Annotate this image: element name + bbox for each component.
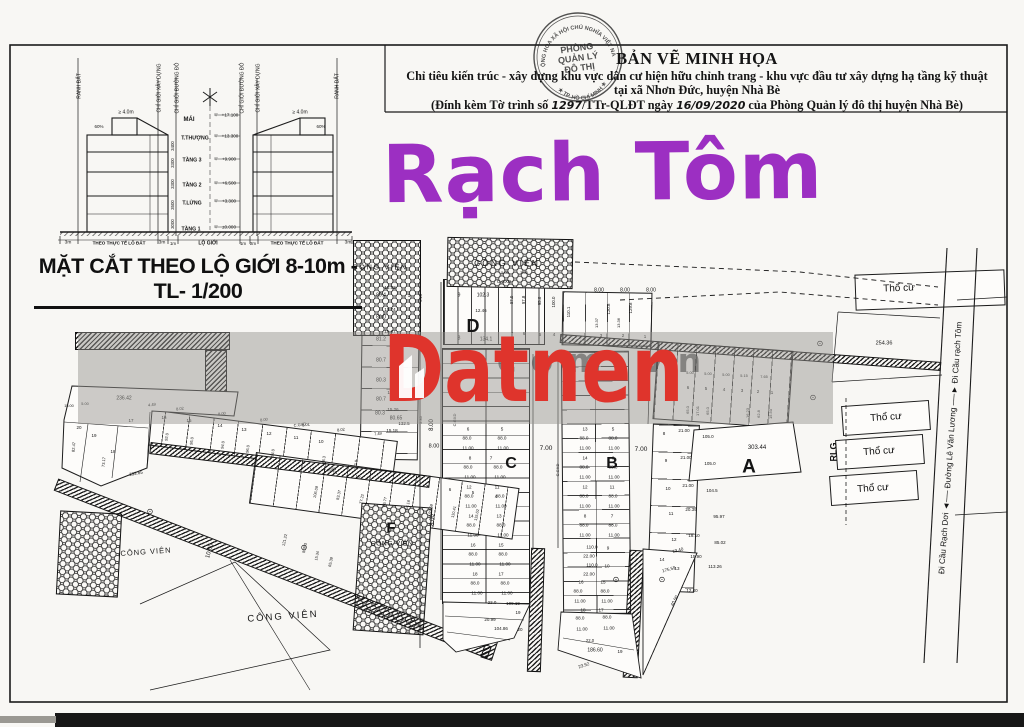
title-block: BẢN VẼ MINH HỌA Chỉ tiêu kiến trúc - xây… — [388, 46, 1006, 112]
section-title: MẶT CẮT THEO LỘ GIỚI 8-10m - TL- 1/200 — [34, 254, 362, 309]
subtitle-line2: tại xã Nhơn Đức, huyện Nhà Bè — [614, 83, 780, 97]
scanned-drawing-page: CỘNG HÒA XÃ HỘI CHỦ NGHĨA VIỆT NAM ★ TP.… — [0, 0, 1024, 727]
drawing-title: BẢN VẼ MINH HỌA — [388, 49, 1006, 69]
watermark-logo-text: Datnen — [383, 324, 684, 416]
subtitle-line1: Chỉ tiêu kiến trúc - xây dựng khu vực dâ… — [406, 69, 988, 83]
scan-edge-strip-left — [0, 716, 56, 723]
handwritten-date: 16/09/2020 — [676, 99, 745, 112]
handwritten-number: 1297 — [551, 99, 582, 112]
scan-edge-strip — [55, 713, 1024, 727]
place-name-overlay: Rạch Tôm — [382, 124, 824, 222]
cross-section-drawing — [58, 58, 352, 244]
attachment-note: (Đính kèm Tờ trình số 1297/TTr-QLĐT ngày… — [388, 98, 1006, 113]
axis-symbol-icon — [203, 88, 217, 106]
plan-polygons — [62, 386, 801, 678]
